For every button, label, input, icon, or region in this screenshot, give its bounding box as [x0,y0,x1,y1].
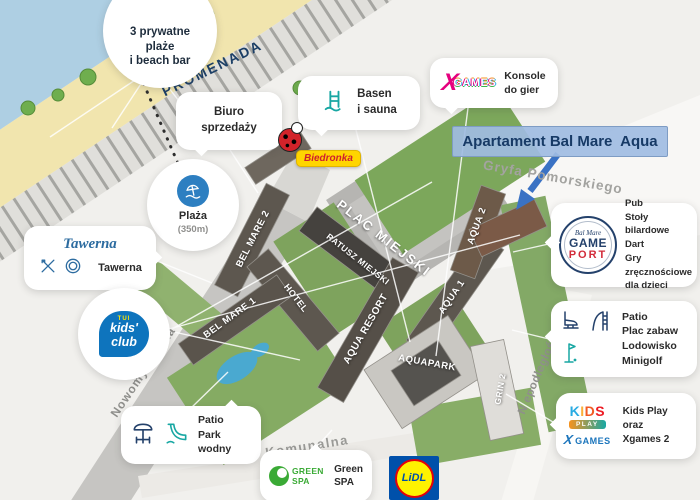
cutlery-icon [38,256,58,281]
callout-kids-club: TUI kids' club [78,288,170,380]
lidl-logo: LiDL [389,456,439,500]
xgames-logo: X GAMES [442,71,496,95]
ice-skate-icon [559,309,585,338]
biedronka-logo: Biedronka [278,128,361,167]
resort-map: PROMENADA Gryfa Pomorskiego Nowomyśliwsk… [0,0,700,500]
tawerna-logo: Tawerna [63,236,117,253]
callout-xgames-consoles: X GAMES Konsole do gier [430,58,558,108]
callout-tawerna: Tawerna Tawerna [24,226,156,290]
pool-ladder-icon [321,87,349,120]
game-port-logo: Bal Mare GAME PORT [559,216,617,274]
xgames-2-logo: X GAMES [564,431,611,449]
patio-table-icon [130,420,156,451]
highlight-label-apartament-bal-mare-aqua: Apartament Bal Mare Aqua [452,126,668,157]
callout-beach-distance: Plaża (350m) [147,159,239,251]
callout-pool-sauna: Basen i sauna [298,76,420,130]
waterslide-icon [164,420,190,451]
callout-sales-office: Biuro sprzedaży [176,92,282,150]
callout-game-port: Bal Mare GAME PORT Pub Stoły bilardowe D… [551,203,697,287]
callout-patio-attractions: Patio Plac zabaw Lodowisko Minigolf [551,301,697,377]
playground-slide-icon [588,309,614,338]
biedronka-label: Biedronka [296,150,361,167]
kids-play-logo: KIDS PLAY X GAMES [564,404,611,449]
plate-icon [63,256,83,281]
green-spa-logo: GREEN SPA [269,466,326,486]
green-spa-leaf-icon [269,466,289,486]
ladybug-icon [278,128,302,152]
callout-patio-waterpark: Patio Park wodny [121,406,261,464]
beach-icon [177,175,209,207]
callout-kids-play: KIDS PLAY X GAMES Kids Play oraz Xgames … [556,393,696,459]
tui-kids-club-logo: TUI kids' club [99,311,149,356]
minigolf-icon [559,341,585,370]
callout-green-spa: GREEN SPA Green SPA [260,450,372,500]
